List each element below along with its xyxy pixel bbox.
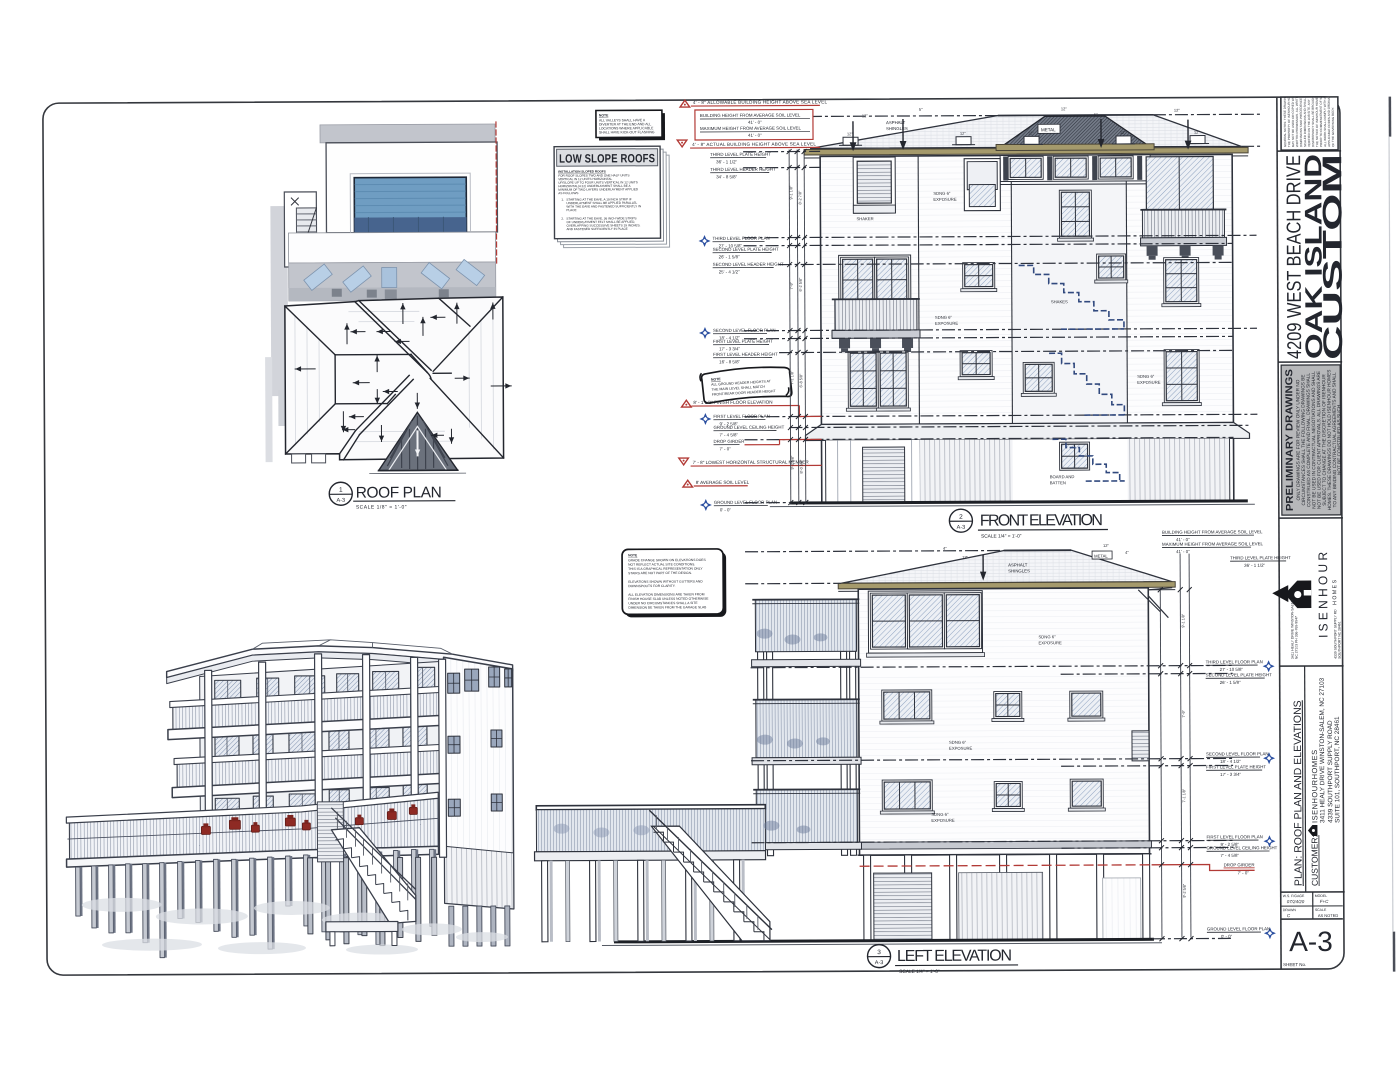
svg-text:SHEET No.: SHEET No. [1283, 962, 1306, 967]
svg-text:SECOND LEVEL PLATE HEIGHT: SECOND LEVEL PLATE HEIGHT [1206, 672, 1272, 677]
svg-text:H O M E S: H O M E S [1332, 580, 1338, 605]
svg-text:9'-2 5/8": 9'-2 5/8" [791, 455, 795, 470]
svg-text:FIRST LEVEL FLOOR PLAN: FIRST LEVEL FLOOR PLAN [1206, 834, 1262, 839]
svg-text:GROUND LEVEL FLOOR PLAN: GROUND LEVEL FLOOR PLAN [714, 500, 777, 505]
svg-text:SDNG 6": SDNG 6" [935, 315, 953, 320]
svg-text:SHINGLES: SHINGLES [1008, 568, 1030, 573]
svg-text:BUILDING HEIGHT FROM AVERAGE S: BUILDING HEIGHT FROM AVERAGE SOIL LEVEL [1162, 529, 1263, 534]
svg-text:STAIRS ARE NOT PART OF THE DES: STAIRS ARE NOT PART OF THE DESIGN. [628, 571, 692, 575]
svg-text:EXPOSURE: EXPOSURE [933, 197, 957, 202]
svg-text:OF THE GOVERNING BODY.: OF THE GOVERNING BODY. [1331, 107, 1335, 147]
svg-text:LOW SLOPE ROOFS: LOW SLOPE ROOFS [559, 151, 655, 165]
svg-text:17' - 3 3/4": 17' - 3 3/4" [719, 346, 740, 351]
svg-text:1.: 1. [561, 198, 564, 202]
svg-text:NC 27103 PH 336-765-9547: NC 27103 PH 336-765-9547 [1294, 616, 1298, 659]
svg-text:SECOND LEVEL PLATE HEIGHT: SECOND LEVEL PLATE HEIGHT [713, 247, 779, 252]
svg-text:SUITE 101, SOUTHPORT, NC 28461: SUITE 101, SOUTHPORT, NC 28461 [1334, 716, 1342, 823]
svg-text:THIRD LEVEL PLATE HEIGHT: THIRD LEVEL PLATE HEIGHT [710, 152, 771, 157]
svg-text:SOUTHPORT NC 28461: SOUTHPORT NC 28461 [1337, 621, 1341, 659]
svg-text:3411 HEALY DRIVE WINSTON-SALEM: 3411 HEALY DRIVE WINSTON-SALEM, NC 27103 [1319, 677, 1327, 823]
svg-text:SHAKES: SHAKES [1051, 299, 1068, 304]
svg-text:27' - 10 5/8": 27' - 10 5/8" [1220, 667, 1244, 672]
svg-text:EXPOSURE: EXPOSURE [1038, 640, 1062, 645]
svg-text:AS FOLLOWS: AS FOLLOWS [558, 191, 578, 195]
svg-text:9'-2 5/8": 9'-2 5/8" [1183, 883, 1187, 898]
svg-text:SCALE 1/8" = 1'-0": SCALE 1/8" = 1'-0" [356, 504, 407, 510]
svg-text:9'-1 1/8": 9'-1 1/8" [789, 185, 793, 200]
svg-text:PRELIMINARY DRAWINGS: PRELIMINARY DRAWINGS [1284, 369, 1296, 511]
svg-text:ASPHALT: ASPHALT [1008, 562, 1028, 567]
svg-text:EXPOSURE: EXPOSURE [949, 746, 973, 751]
svg-text:SCALE 1/4" = 1'-0": SCALE 1/4" = 1'-0" [899, 969, 940, 975]
svg-text:12": 12" [1120, 131, 1126, 135]
svg-text:6'-2 5/8": 6'-2 5/8" [799, 277, 803, 292]
svg-text:FIRST LEVEL HEADER HEIGHT: FIRST LEVEL HEADER HEIGHT [713, 352, 778, 357]
svg-text:NOT BE CONSTRUED AS SUCH: NOT BE CONSTRUED AS SUCH [1336, 405, 1341, 475]
svg-text:AS NOTED: AS NOTED [1318, 913, 1339, 918]
svg-text:BOARD AND: BOARD AND [1050, 474, 1075, 479]
svg-text:SCALE: SCALE [1315, 908, 1327, 912]
svg-text:16' - 8 5/8": 16' - 8 5/8" [719, 359, 740, 364]
svg-text:DIMENSION BE TAKEN FROM THE GA: DIMENSION BE TAKEN FROM THE GARAGE SLAB [628, 605, 707, 609]
svg-text:7' - 0": 7' - 0" [720, 446, 732, 451]
svg-text:PLAN: ROOF PLAN AND ELEVATION: PLAN: ROOF PLAN AND ELEVATIONS [1292, 700, 1305, 886]
svg-text:DROP GIRDER: DROP GIRDER [714, 439, 745, 444]
svg-text:2.: 2. [561, 217, 564, 221]
svg-text:12": 12" [1028, 131, 1034, 135]
svg-text:SDNG 6": SDNG 6" [949, 740, 967, 745]
svg-text:A-3: A-3 [875, 960, 884, 966]
svg-text:EXPOSURE: EXPOSURE [931, 818, 955, 823]
svg-text:SECOND LEVEL FLOOR PLAN: SECOND LEVEL FLOOR PLAN [1206, 751, 1269, 756]
svg-text:41' - 0": 41' - 0" [1176, 549, 1190, 554]
svg-text:SECOND LEVEL FLOOR PLAN: SECOND LEVEL FLOOR PLAN [713, 328, 776, 333]
svg-text:26' - 1 5/8": 26' - 1 5/8" [1220, 680, 1241, 685]
svg-text:MAXIMUM HEIGHT FROM AVERAGE SO: MAXIMUM HEIGHT FROM AVERAGE SOIL LEVEL [1162, 541, 1264, 546]
svg-text:NOTE: NOTE [711, 377, 722, 382]
svg-text:MAXIMUM HEIGHT FROM AVERAGE SO: MAXIMUM HEIGHT FROM AVERAGE SOIL LEVEL [700, 125, 802, 130]
svg-text:MODEL: MODEL [1315, 894, 1328, 898]
svg-text:9'-1 1/8": 9'-1 1/8" [1181, 613, 1185, 628]
svg-text:7'-9": 7'-9" [790, 281, 794, 289]
svg-text:1: 1 [339, 487, 343, 494]
svg-text:ASPHALT: ASPHALT [886, 120, 906, 125]
svg-text:ROOF PLAN: ROOF PLAN [356, 484, 444, 501]
svg-text:GROUND LEVEL CEILING HEIGHT: GROUND LEVEL CEILING HEIGHT [1206, 845, 1277, 850]
svg-text:PLACE: PLACE [566, 208, 576, 212]
svg-text:12": 12" [1061, 106, 1067, 111]
svg-text:SDNG 6": SDNG 6" [933, 191, 951, 196]
svg-text:4' - 8" ALLOWABLE BUILDING HEI: 4' - 8" ALLOWABLE BUILDING HEIGHT ABOVE … [693, 99, 828, 105]
svg-text:DOWNSPOUTS FOR CLARITY.: DOWNSPOUTS FOR CLARITY. [628, 584, 676, 588]
svg-text:AND FASTENED SUFFICIENTLY IN P: AND FASTENED SUFFICIENTLY IN PLACE [566, 227, 627, 231]
svg-text:26' - 1 5/8": 26' - 1 5/8" [719, 254, 740, 259]
svg-text:SDNG 6": SDNG 6" [1038, 634, 1056, 639]
svg-text:34' - 8 5/8": 34' - 8 5/8" [716, 174, 737, 179]
svg-text:BUILDING HEIGHT FROM AVERAGE S: BUILDING HEIGHT FROM AVERAGE SOIL LEVEL [700, 113, 801, 118]
svg-text:DROP GIRDER: DROP GIRDER [1224, 862, 1255, 867]
svg-text:NOTE: NOTE [599, 113, 609, 117]
svg-text:GROUND LEVEL FLOOR PLAN: GROUND LEVEL FLOOR PLAN [1207, 926, 1270, 931]
svg-text:SCALE 1/4" = 1'-0": SCALE 1/4" = 1'-0" [981, 533, 1022, 539]
svg-text:SDNG 6": SDNG 6" [1137, 374, 1155, 379]
svg-text:4": 4" [943, 546, 947, 551]
svg-text:07/24/20: 07/24/20 [1287, 899, 1305, 904]
svg-text:17' - 3 3/4": 17' - 3 3/4" [1220, 772, 1241, 777]
svg-text:12": 12" [1103, 543, 1109, 548]
svg-text:SHAKER: SHAKER [856, 216, 873, 221]
svg-text:6'-8 5/8": 6'-8 5/8" [799, 373, 803, 388]
svg-text:8'-2 7/8": 8'-2 7/8" [798, 190, 802, 205]
svg-text:12": 12" [1174, 108, 1180, 113]
svg-text:A-3: A-3 [337, 498, 346, 504]
svg-text:THIRD LEVEL FLOOR PLAN: THIRD LEVEL FLOOR PLAN [1206, 659, 1263, 664]
svg-text:41' - 0": 41' - 0" [748, 133, 762, 138]
svg-text:7'-1 1/8": 7'-1 1/8" [1182, 788, 1186, 803]
svg-text:SHALL HAVE KICK-OUT FLASHING: SHALL HAVE KICK-OUT FLASHING [599, 130, 655, 134]
svg-text:41' - 0": 41' - 0" [748, 120, 762, 125]
svg-text:WITH THE EAVE AND FASTENED SUF: WITH THE EAVE AND FASTENED SUFFICIENTLY … [566, 204, 641, 208]
svg-text:5": 5" [1094, 112, 1098, 117]
svg-text:ISENHOURHOMES: ISENHOURHOMES [1310, 749, 1319, 823]
svg-text:THIRD LEVEL FLOOR PLAN: THIRD LEVEL FLOOR PLAN [713, 236, 770, 241]
svg-text:CUSTOMER:: CUSTOMER: [1309, 835, 1319, 886]
svg-text:2: 2 [959, 514, 963, 521]
svg-text:8'-0 5/8": 8'-0 5/8" [800, 459, 804, 474]
svg-text:7' - 4 5/8": 7' - 4 5/8" [719, 432, 738, 437]
svg-text:36' - 1 1/2": 36' - 1 1/2" [716, 159, 737, 164]
svg-text:0' - 0": 0' - 0" [1221, 934, 1233, 939]
svg-text:FIRST LEVEL PLATE HEIGHT: FIRST LEVEL PLATE HEIGHT [1206, 764, 1266, 769]
svg-text:THIRD LEVEL HEADER HEIGHT: THIRD LEVEL HEADER HEIGHT [710, 167, 776, 172]
svg-text:SDNG 6": SDNG 6" [931, 812, 949, 817]
svg-text:W.S. F/GAGE: W.S. F/GAGE [1283, 894, 1305, 898]
svg-text:12": 12" [1194, 131, 1200, 135]
svg-text:25' - 4 1/2": 25' - 4 1/2" [719, 269, 740, 274]
svg-text:8' - 1 1/2" FINISH FLOOR ELEVA: 8' - 1 1/2" FINISH FLOOR ELEVATION [693, 400, 772, 405]
svg-text:7'-9": 7'-9" [1182, 709, 1186, 717]
svg-text:12": 12" [962, 555, 968, 560]
svg-text:FIRST LEVEL PLATE HEIGHT: FIRST LEVEL PLATE HEIGHT [713, 339, 773, 344]
svg-text:36' - 1 1/2": 36' - 1 1/2" [1244, 563, 1265, 568]
svg-text:5": 5" [919, 107, 923, 112]
svg-text:12": 12" [960, 132, 966, 136]
svg-text:0' - 0": 0' - 0" [720, 507, 732, 512]
svg-text:8' AVERAGE SOIL LEVEL: 8' AVERAGE SOIL LEVEL [696, 480, 750, 485]
svg-text:GROUND LEVEL CEILING HEIGHT: GROUND LEVEL CEILING HEIGHT [713, 425, 784, 430]
svg-text:EXPOSURE: EXPOSURE [1137, 380, 1161, 385]
svg-text:I S E N H O U R: I S E N H O U R [1316, 552, 1330, 638]
svg-text:NOTE: NOTE [628, 553, 638, 557]
svg-text:FRONT ELEVATION: FRONT ELEVATION [980, 512, 1105, 530]
svg-text:4' - 8" ACTUAL BUILDING HEIGHT: 4' - 8" ACTUAL BUILDING HEIGHT ABOVE SEA… [692, 141, 816, 147]
svg-text:7' - 0": 7' - 0" [1238, 870, 1250, 875]
svg-text:LEFT ELEVATION: LEFT ELEVATION [897, 947, 1014, 965]
svg-text:4": 4" [1125, 550, 1129, 555]
svg-text:7'-1 1/8": 7'-1 1/8" [790, 370, 794, 385]
svg-text:18' - 4 1/2": 18' - 4 1/2" [1220, 759, 1241, 764]
svg-text:METAL: METAL [1041, 127, 1056, 132]
svg-text:SECOND LEVEL HEADER HEIGHT: SECOND LEVEL HEADER HEIGHT [713, 262, 784, 267]
svg-text:CUSTOM: CUSTOM [1317, 154, 1348, 360]
svg-text:EXPOSURE: EXPOSURE [935, 321, 959, 326]
svg-text:THIRD LEVEL PLATE HEIGHT: THIRD LEVEL PLATE HEIGHT [1230, 555, 1291, 560]
svg-text:FIRST LEVEL FLOOR PLAN: FIRST LEVEL FLOOR PLAN [713, 414, 769, 419]
svg-text:A-3: A-3 [1289, 926, 1333, 957]
svg-text:A-3: A-3 [957, 525, 966, 531]
svg-text:F+C: F+C [1320, 899, 1329, 904]
svg-text:7' - 4 5/8": 7' - 4 5/8" [1221, 853, 1240, 858]
svg-text:BATTEN: BATTEN [1050, 480, 1066, 485]
svg-text:DRAWN: DRAWN [1283, 908, 1297, 912]
svg-text:METAL: METAL [1094, 554, 1108, 559]
svg-text:3: 3 [877, 949, 881, 956]
svg-text:SHINGLES: SHINGLES [886, 126, 908, 131]
